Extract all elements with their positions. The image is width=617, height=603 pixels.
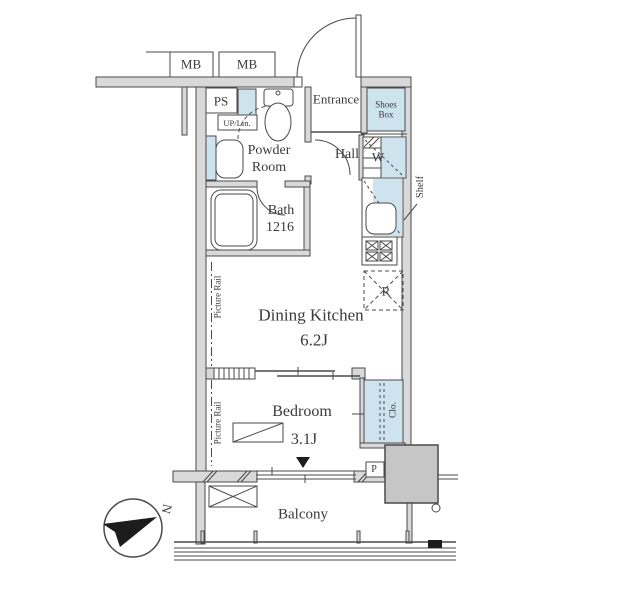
- evacuation-hatch: [209, 486, 257, 507]
- label-dining-kitchen: Dining Kitchen: [258, 307, 363, 324]
- structural-column: [385, 445, 438, 503]
- balcony-railing: [174, 531, 456, 560]
- label-closet: Clo.: [389, 402, 399, 418]
- bathtub-icon: [211, 190, 257, 250]
- label-dining-kitchen-size: 6.2J: [300, 332, 328, 349]
- label-picture-rail-bedroom: Picture Rail: [214, 402, 223, 445]
- label-powder-room-1: Powder: [248, 144, 291, 158]
- label-up-linen: UP/Lin.: [223, 119, 250, 128]
- label-pipe: P: [371, 465, 377, 475]
- kitchen-counter: [362, 178, 403, 237]
- kitchen-sink-icon: [366, 203, 396, 234]
- label-bedroom: Bedroom: [272, 404, 332, 420]
- label-shoes-box-1: Shoes: [375, 101, 397, 110]
- label-washer: W: [372, 151, 384, 164]
- label-bedroom-size: 3.1J: [291, 432, 317, 448]
- sliding-door: [255, 367, 360, 380]
- label-balcony: Balcony: [278, 508, 328, 523]
- label-bath-size: 1216: [266, 221, 294, 235]
- entry-direction-marker: [296, 457, 310, 468]
- drain-circle: [432, 504, 440, 512]
- stove-icon: [362, 237, 397, 265]
- bed-icon: [233, 423, 283, 442]
- label-mailbox-left: MB: [181, 58, 201, 71]
- floor-plan: MB MB PS UP/Lin. Powder Room Entrance Sh…: [0, 0, 617, 603]
- washing-machine-space: [363, 137, 406, 178]
- label-hall: Hall: [335, 148, 359, 162]
- washbasin-icon: [206, 136, 243, 180]
- label-entrance: Entrance: [313, 93, 359, 106]
- label-pipe-space: PS: [214, 95, 228, 108]
- balcony-window: [256, 457, 356, 483]
- label-mailbox-right: MB: [237, 58, 257, 71]
- label-powder-room-2: Room: [252, 161, 286, 175]
- label-shelf: Shelf: [416, 176, 427, 198]
- label-shoes-box-2: Box: [378, 111, 393, 120]
- compass-icon: [103, 499, 162, 557]
- entrance-door: [294, 15, 361, 87]
- divider-hatch-box: [214, 368, 255, 379]
- label-refrigerator: R: [382, 285, 391, 298]
- label-picture-rail-dk: Picture Rail: [214, 276, 223, 319]
- label-bath: Bath: [268, 204, 294, 218]
